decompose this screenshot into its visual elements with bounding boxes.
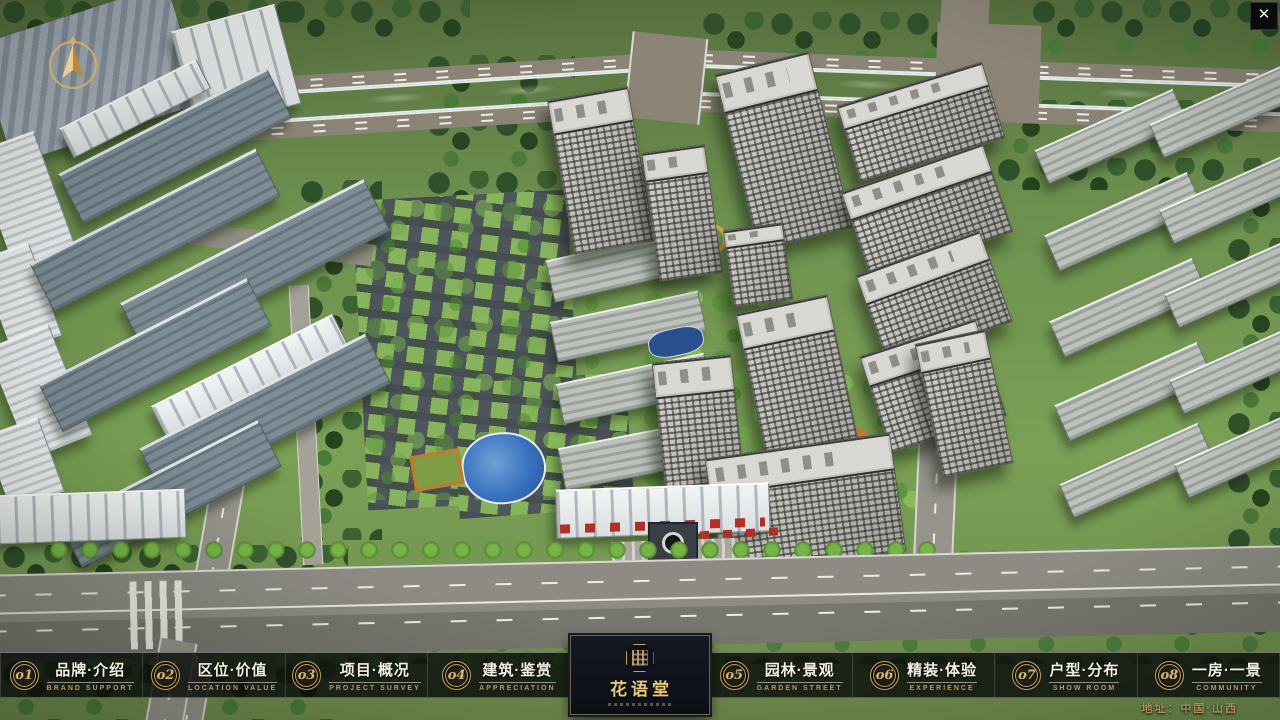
forest-band — [280, 0, 470, 40]
nav-number-badge: o8 — [1155, 661, 1184, 690]
nav-item-location-value[interactable]: o2 区位·价值 LOCATION VALUE — [142, 653, 284, 697]
nav-item-floorplan-distribution[interactable]: o7 户型·分布 SHOW ROOM — [994, 653, 1136, 697]
nav-item-interior-experience[interactable]: o6 精装·体验 EXPERIENCE — [852, 653, 994, 697]
bridge — [624, 31, 709, 124]
nav-number-badge: o6 — [870, 661, 899, 690]
nav-title: 建筑·鉴赏 — [482, 659, 552, 680]
nav-subtitle: SHOW ROOM — [1049, 682, 1119, 692]
masterplan-3d-view[interactable] — [0, 0, 1280, 720]
nav-subtitle: BRAND SUPPORT — [47, 682, 134, 692]
nav-title: 区位·价值 — [198, 659, 268, 680]
forest-band — [1030, 0, 1280, 58]
bottom-nav: o1 品牌·介绍 BRAND SUPPORT o2 区位·价值 LOCATION… — [0, 652, 1280, 698]
nav-number-badge: o1 — [10, 661, 39, 690]
nav-title: 户型·分布 — [1049, 659, 1119, 680]
close-button[interactable]: ✕ — [1250, 2, 1278, 30]
nav-item-project-survey[interactable]: o3 项目·概况 PROJECT SURVEY — [285, 653, 427, 697]
nav-number-badge: o4 — [442, 661, 471, 690]
brand-logo-panel: 花语堂 — [570, 635, 710, 715]
nav-item-architecture[interactable]: o4 建筑·鉴赏 APPRECIATION — [427, 653, 569, 697]
nav-number-badge: o7 — [1012, 661, 1041, 690]
nav-title: 项目·概况 — [340, 659, 410, 680]
brand-name: 花语堂 — [606, 675, 673, 700]
nav-item-brand-intro[interactable]: o1 品牌·介绍 BRAND SUPPORT — [0, 653, 142, 697]
brand-tagline-strip — [608, 703, 672, 706]
crosswalk — [129, 580, 187, 649]
highrise-tower — [723, 222, 793, 308]
nav-number-badge: o3 — [292, 661, 321, 690]
nav-title: 品牌·介绍 — [55, 659, 125, 680]
nav-subtitle: APPRECIATION — [479, 682, 555, 692]
nav-subtitle: LOCATION VALUE — [188, 682, 277, 692]
nav-subtitle: GARDEN STREET — [757, 682, 843, 692]
compass-icon — [44, 34, 102, 92]
nav-item-garden-landscape[interactable]: o5 园林·景观 GARDEN STREET — [710, 653, 852, 697]
nav-subtitle: COMMUNITY — [1192, 682, 1262, 692]
project-address: 地址：中国·山西 — [1141, 700, 1238, 716]
presentation-window: ✕ o1 品牌·介绍 BRAND SUPPORT o2 区位·价值 LOCATI… — [0, 0, 1280, 720]
nav-item-room-view[interactable]: o8 一房·一景 COMMUNITY — [1137, 653, 1280, 697]
nav-title: 园林·景观 — [765, 659, 835, 680]
nav-title: 一房·一景 — [1192, 659, 1262, 680]
brand-seal-icon — [626, 644, 654, 672]
nav-subtitle: EXPERIENCE — [907, 682, 977, 692]
nav-subtitle: PROJECT SURVEY — [329, 682, 421, 692]
nav-number-badge: o5 — [720, 661, 749, 690]
nav-number-badge: o2 — [151, 661, 180, 690]
nav-title: 精装·体验 — [907, 659, 977, 680]
